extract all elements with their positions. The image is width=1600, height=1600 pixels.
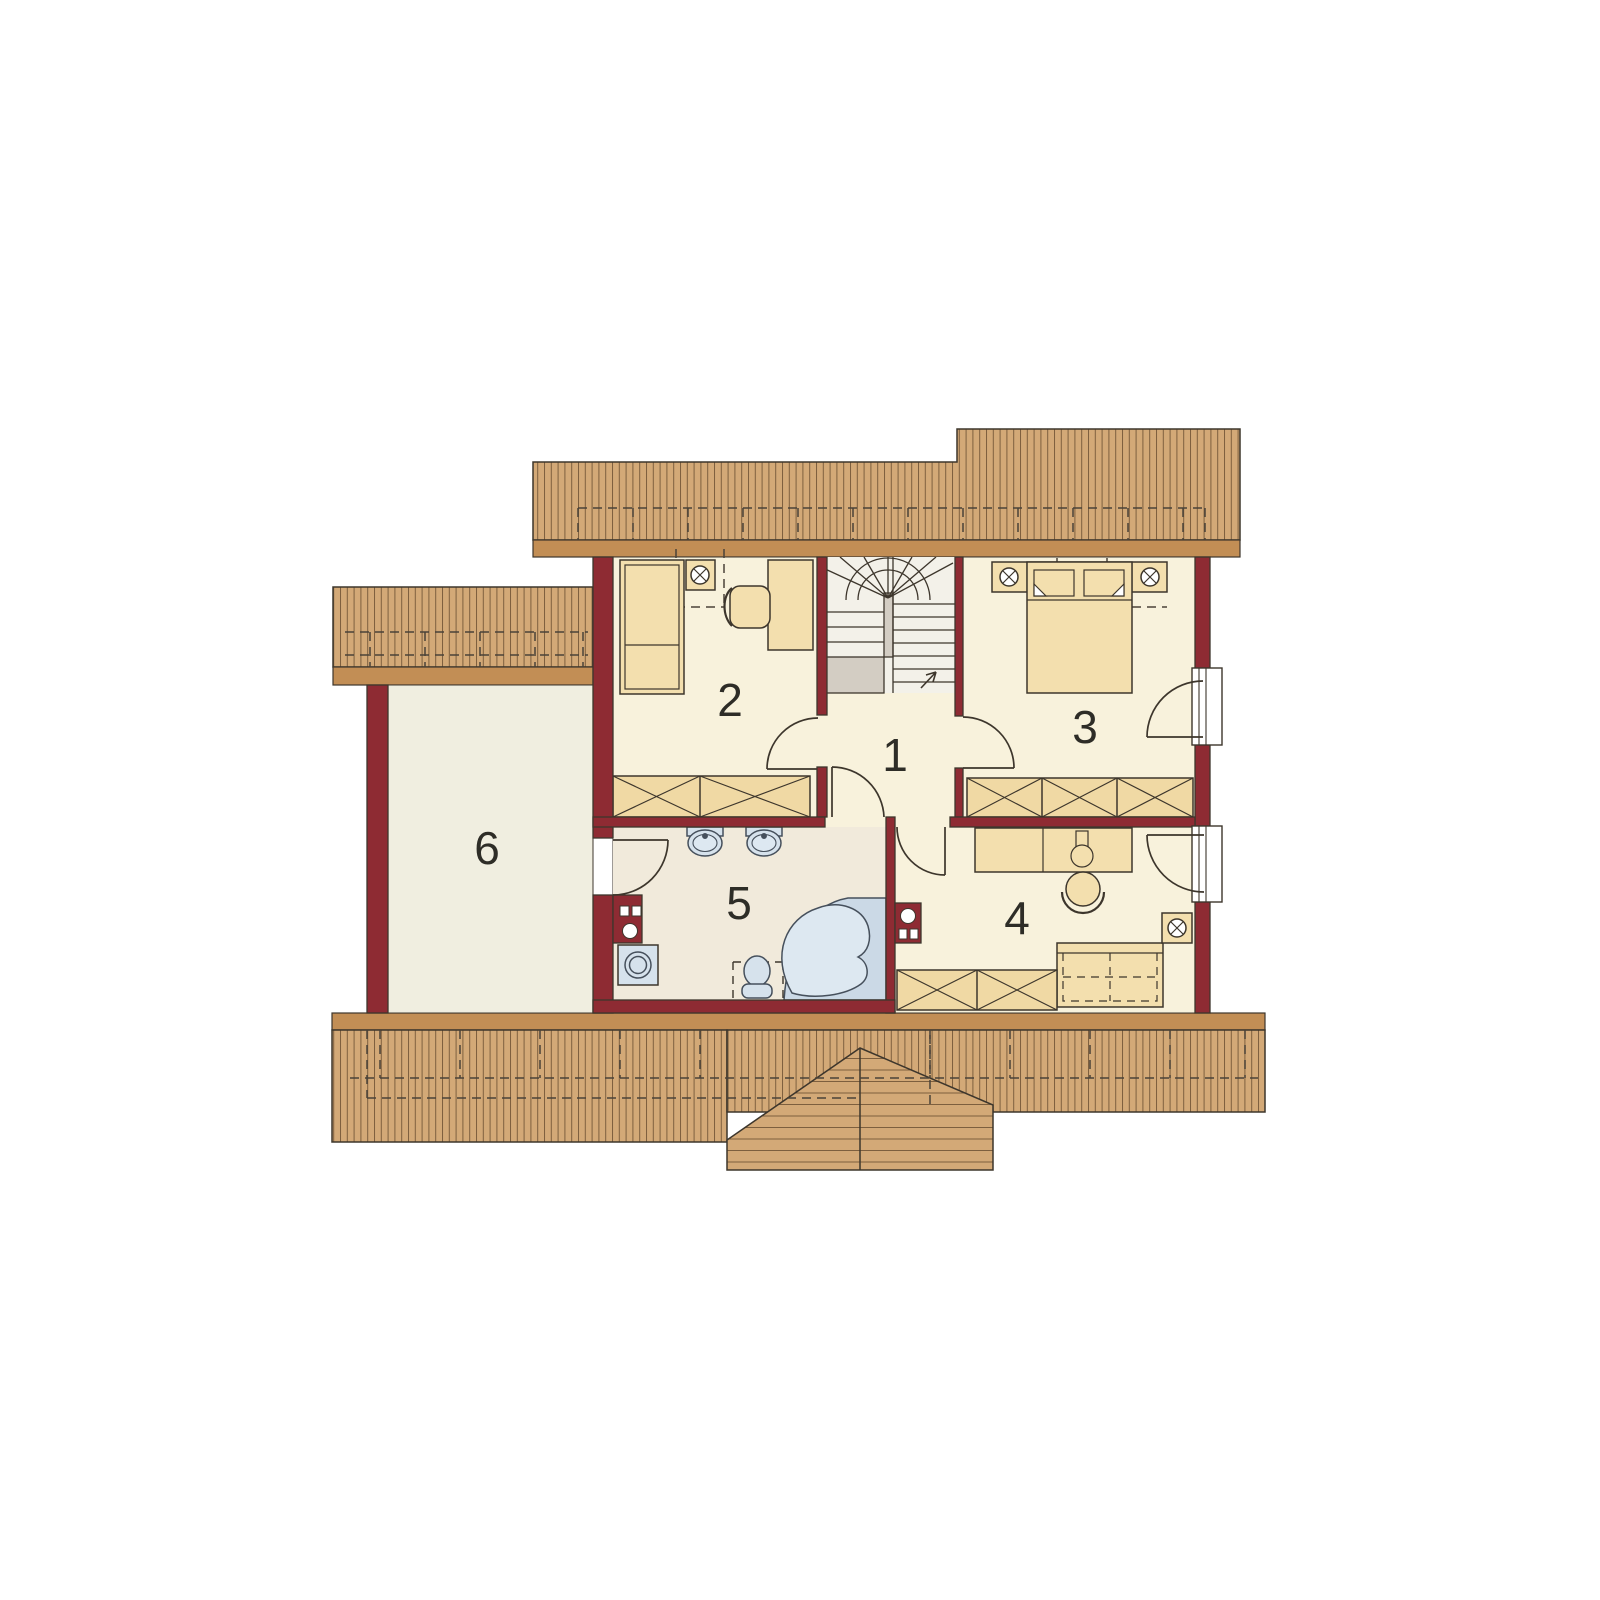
- wall-room2-stairs-upper: [817, 557, 827, 715]
- balcony-window: [1192, 826, 1222, 902]
- wall-east-a: [1195, 557, 1210, 670]
- room-4-wardrobe: [897, 970, 1057, 1010]
- room-1-label: 1: [882, 728, 908, 782]
- sofa-bed: [1057, 943, 1163, 1007]
- stair-landing: [823, 657, 884, 693]
- wall-west-main-upper: [593, 557, 613, 838]
- room-6-label: 6: [474, 821, 500, 875]
- roof-bottom: [332, 1013, 1265, 1170]
- single-bed: [620, 560, 684, 694]
- room-2-label: 2: [717, 673, 743, 727]
- wall-east-c: [1195, 900, 1210, 1013]
- roof-bottom-fascia: [332, 1013, 1265, 1030]
- wall-east-b: [1195, 743, 1210, 828]
- ceiling-lamp-icon: [1168, 919, 1186, 937]
- roof-left: [333, 587, 593, 685]
- balcony-window: [1192, 668, 1222, 745]
- washbasin: [687, 827, 723, 856]
- room-3-wardrobe: [967, 778, 1193, 817]
- wall-bath-south: [593, 1000, 895, 1013]
- washing-machine: [618, 945, 658, 985]
- stair-newel: [884, 593, 893, 657]
- wall-room2-bath: [593, 817, 825, 827]
- wall-west-room6: [367, 685, 388, 1013]
- wall-room2-stairs-lower: [817, 767, 827, 817]
- floor-plan-drawing: [0, 0, 1600, 1600]
- ceiling-lamp-icon: [1000, 568, 1018, 586]
- room-4-label: 4: [1004, 891, 1030, 945]
- room-5-label: 5: [726, 876, 752, 930]
- room-2-wardrobe: [613, 776, 810, 817]
- ceiling-lamp-icon: [1141, 568, 1159, 586]
- chimney: [613, 895, 642, 943]
- roof-left-fascia: [333, 667, 593, 685]
- wall-corridor-room4-room3: [950, 817, 1195, 827]
- desk: [975, 828, 1132, 872]
- roof-top: [533, 429, 1240, 557]
- ceiling-lamp-icon: [691, 566, 709, 584]
- wall-bath-room4: [886, 817, 895, 1013]
- wall-stairs-room3-upper: [955, 557, 963, 716]
- washbasin: [746, 827, 782, 856]
- desk-chair: [725, 586, 771, 628]
- chimney: [895, 903, 921, 943]
- wall-stairs-room3-lower: [955, 768, 963, 817]
- floor-plan: 1 2 3 4 5 6: [0, 0, 1600, 1600]
- wall-west-main-lower: [593, 895, 613, 1013]
- desk: [768, 560, 813, 650]
- roof-top-fascia: [533, 540, 1240, 557]
- room-3-label: 3: [1072, 700, 1098, 754]
